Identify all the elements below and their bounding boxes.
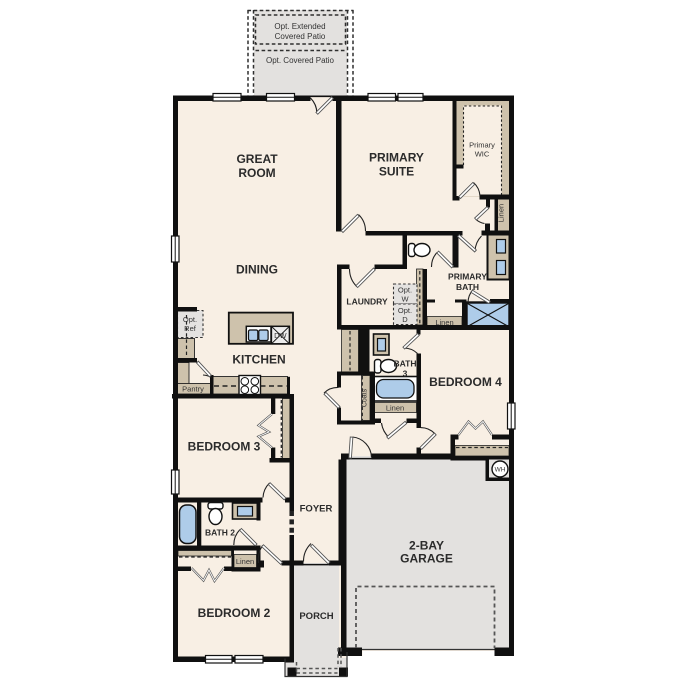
svg-text:Primary: Primary bbox=[469, 141, 495, 150]
svg-text:2-BAY: 2-BAY bbox=[409, 539, 444, 553]
svg-text:3: 3 bbox=[403, 369, 408, 379]
svg-text:WH: WH bbox=[495, 467, 506, 474]
svg-text:BEDROOM 4: BEDROOM 4 bbox=[429, 375, 502, 389]
svg-text:FOYER: FOYER bbox=[300, 504, 333, 515]
svg-text:GARAGE: GARAGE bbox=[400, 552, 453, 566]
svg-text:W: W bbox=[401, 295, 409, 304]
svg-text:DINING: DINING bbox=[236, 263, 278, 277]
svg-text:Opt. Covered Patio: Opt. Covered Patio bbox=[266, 56, 335, 65]
svg-text:SUITE: SUITE bbox=[379, 165, 414, 179]
svg-text:Opt.: Opt. bbox=[183, 315, 197, 324]
svg-text:Opt.: Opt. bbox=[398, 306, 412, 315]
svg-text:Linen: Linen bbox=[386, 404, 404, 413]
svg-text:PRIMARY: PRIMARY bbox=[369, 151, 424, 165]
svg-text:Pantry: Pantry bbox=[182, 385, 204, 394]
svg-text:Covered Patio: Covered Patio bbox=[275, 32, 326, 41]
svg-text:BATH 2: BATH 2 bbox=[205, 528, 235, 538]
svg-text:Linen: Linen bbox=[236, 557, 254, 566]
svg-text:BATH: BATH bbox=[456, 282, 479, 292]
svg-text:D: D bbox=[402, 315, 408, 324]
svg-text:PORCH: PORCH bbox=[299, 611, 333, 622]
svg-text:Opt. Extended: Opt. Extended bbox=[274, 22, 325, 31]
svg-text:BEDROOM 3: BEDROOM 3 bbox=[188, 440, 261, 454]
svg-text:Coats: Coats bbox=[362, 388, 369, 407]
svg-text:Opt.: Opt. bbox=[398, 286, 412, 295]
svg-text:WIC: WIC bbox=[475, 150, 490, 159]
svg-text:BEDROOM 2: BEDROOM 2 bbox=[198, 606, 271, 620]
svg-text:GREAT: GREAT bbox=[236, 152, 278, 166]
svg-text:ROOM: ROOM bbox=[238, 166, 275, 180]
svg-text:PRIMARY: PRIMARY bbox=[448, 272, 487, 282]
svg-text:Linen: Linen bbox=[497, 204, 506, 222]
svg-text:LAUNDRY: LAUNDRY bbox=[346, 297, 388, 307]
svg-text:DW: DW bbox=[274, 331, 287, 340]
svg-text:BATH: BATH bbox=[394, 359, 417, 369]
svg-text:KITCHEN: KITCHEN bbox=[232, 353, 285, 367]
